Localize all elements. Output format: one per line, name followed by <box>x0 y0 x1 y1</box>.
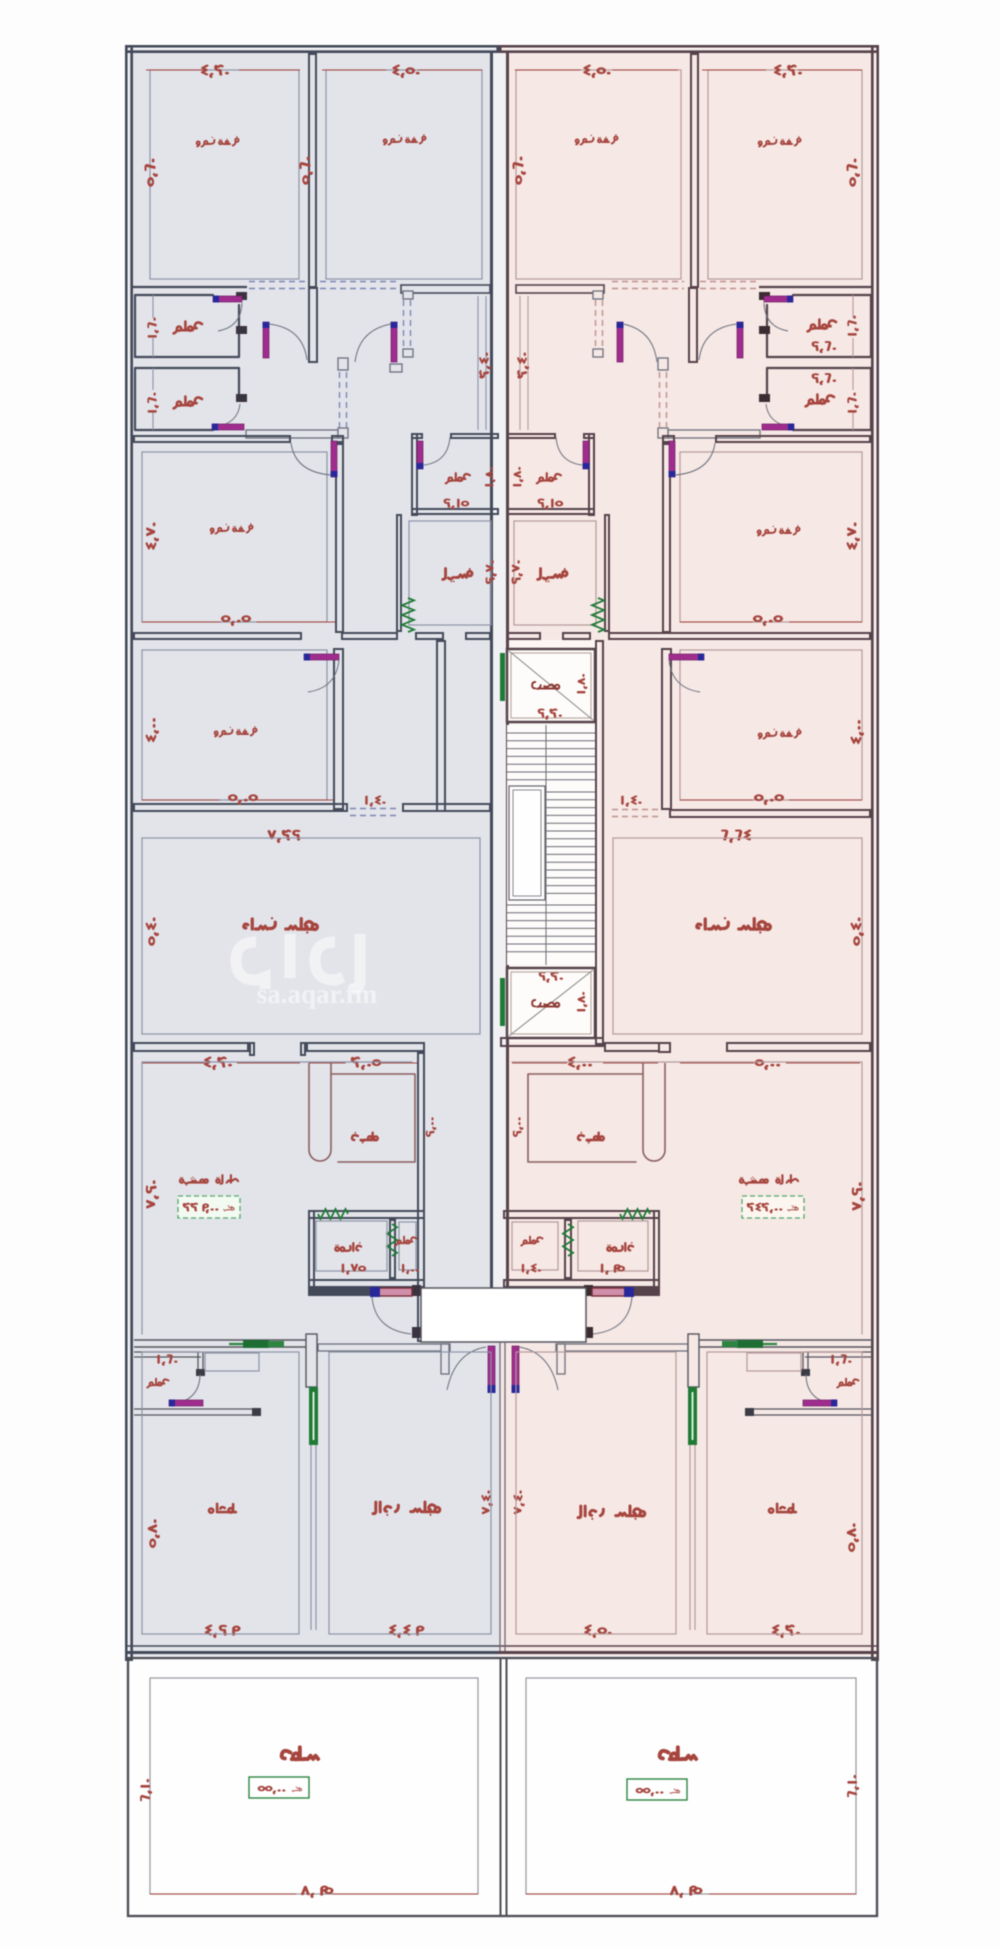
svg-text:sa.aqar.fm: sa.aqar.fm <box>257 979 378 1009</box>
